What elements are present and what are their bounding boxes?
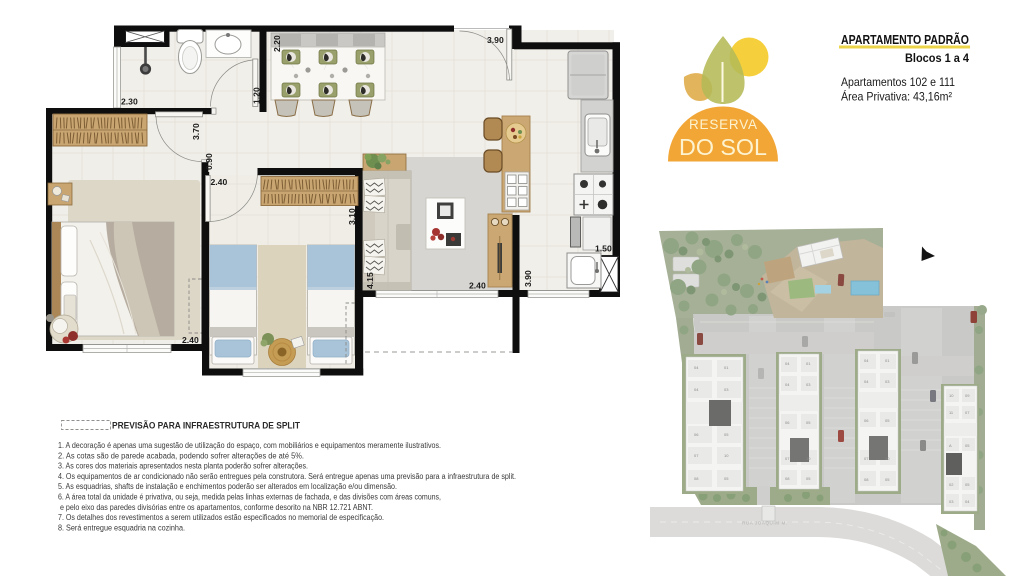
svg-text:1.20: 1.20	[252, 87, 262, 104]
svg-text:5. As esquadrias, shafts de in: 5. As esquadrias, shafts de instalação e…	[58, 482, 397, 491]
svg-text:08: 08	[864, 477, 869, 482]
svg-text:0.90: 0.90	[204, 153, 214, 170]
svg-text:A: A	[949, 443, 952, 448]
svg-text:10: 10	[806, 456, 811, 461]
svg-text:2. As cotas são de parede acab: 2. As cotas são de parede acabada, poden…	[58, 451, 304, 460]
svg-text:05: 05	[724, 432, 729, 437]
svg-text:07: 07	[694, 453, 699, 458]
svg-text:04: 04	[785, 382, 790, 387]
svg-text:06: 06	[864, 418, 869, 423]
svg-text:07: 07	[785, 456, 790, 461]
svg-text:1.50: 1.50	[595, 244, 612, 254]
svg-text:3.90: 3.90	[523, 270, 533, 287]
svg-text:DO SOL: DO SOL	[679, 134, 767, 160]
svg-text:03: 03	[885, 379, 890, 384]
svg-text:08: 08	[694, 476, 699, 481]
svg-text:3.10: 3.10	[347, 208, 357, 225]
svg-text:06: 06	[785, 420, 790, 425]
svg-text:03: 03	[949, 499, 954, 504]
svg-text:01: 01	[885, 358, 890, 363]
svg-text:2.20: 2.20	[272, 35, 282, 52]
svg-text:2.30: 2.30	[121, 97, 138, 107]
svg-text:04: 04	[965, 499, 970, 504]
svg-text:PREVISÃO PARA INFRAESTRUTURA D: PREVISÃO PARA INFRAESTRUTURA DE SPLIT	[112, 421, 300, 431]
svg-text:10: 10	[885, 456, 890, 461]
svg-text:e pelo eixo das paredes divisó: e pelo eixo das paredes divisórias entre…	[60, 503, 373, 512]
svg-text:2.40: 2.40	[211, 177, 228, 187]
svg-text:3.70: 3.70	[191, 123, 201, 140]
svg-text:RESERVA: RESERVA	[689, 117, 757, 132]
svg-text:2.40: 2.40	[182, 335, 199, 345]
svg-text:10: 10	[724, 453, 729, 458]
svg-text:09: 09	[965, 393, 970, 398]
svg-text:04: 04	[785, 361, 790, 366]
svg-text:02: 02	[949, 482, 954, 487]
svg-text:05: 05	[885, 477, 890, 482]
svg-text:05: 05	[724, 476, 729, 481]
svg-text:05: 05	[965, 482, 970, 487]
svg-text:6. A área total da unidade é p: 6. A área total da unidade é privativa, …	[58, 493, 441, 502]
svg-text:07: 07	[864, 456, 869, 461]
svg-text:04: 04	[864, 358, 869, 363]
svg-text:4. Os equipamentos de ar condi: 4. Os equipamentos de ar condicionado nã…	[58, 472, 516, 481]
svg-text:Apartamentos 102 e 111: Apartamentos 102 e 111	[841, 75, 955, 89]
svg-text:Blocos 1 a 4: Blocos 1 a 4	[905, 51, 969, 65]
svg-text:4.15: 4.15	[365, 272, 375, 289]
svg-text:04: 04	[694, 365, 699, 370]
svg-text:03: 03	[806, 382, 811, 387]
svg-text:04: 04	[864, 379, 869, 384]
svg-text:1. A decoração é apenas uma su: 1. A decoração é apenas uma sugestão de …	[58, 441, 441, 450]
svg-text:2.40: 2.40	[469, 281, 486, 291]
svg-text:3. As cores dos materiais apre: 3. As cores dos materiais apresentados n…	[58, 462, 308, 471]
svg-text:06: 06	[694, 432, 699, 437]
svg-text:05: 05	[965, 443, 970, 448]
svg-text:05: 05	[806, 420, 811, 425]
svg-text:07: 07	[965, 410, 970, 415]
svg-text:08: 08	[785, 476, 790, 481]
svg-text:03: 03	[724, 387, 729, 392]
svg-text:8. Será entregue esquadria na: 8. Será entregue esquadria na cozinha.	[58, 523, 185, 532]
svg-text:7. Os detalhes dos revestiment: 7. Os detalhes dos revestimentos a serem…	[58, 513, 384, 522]
svg-text:04: 04	[694, 387, 699, 392]
svg-text:05: 05	[806, 476, 811, 481]
svg-text:01: 01	[806, 361, 811, 366]
svg-text:10: 10	[949, 393, 954, 398]
svg-text:Área Privativa: 43,16m²: Área Privativa: 43,16m²	[841, 89, 952, 104]
svg-text:05: 05	[885, 418, 890, 423]
svg-text:3.90: 3.90	[487, 35, 504, 45]
svg-text:01: 01	[724, 365, 729, 370]
svg-text:APARTAMENTO PADRÃO: APARTAMENTO PADRÃO	[841, 32, 969, 47]
